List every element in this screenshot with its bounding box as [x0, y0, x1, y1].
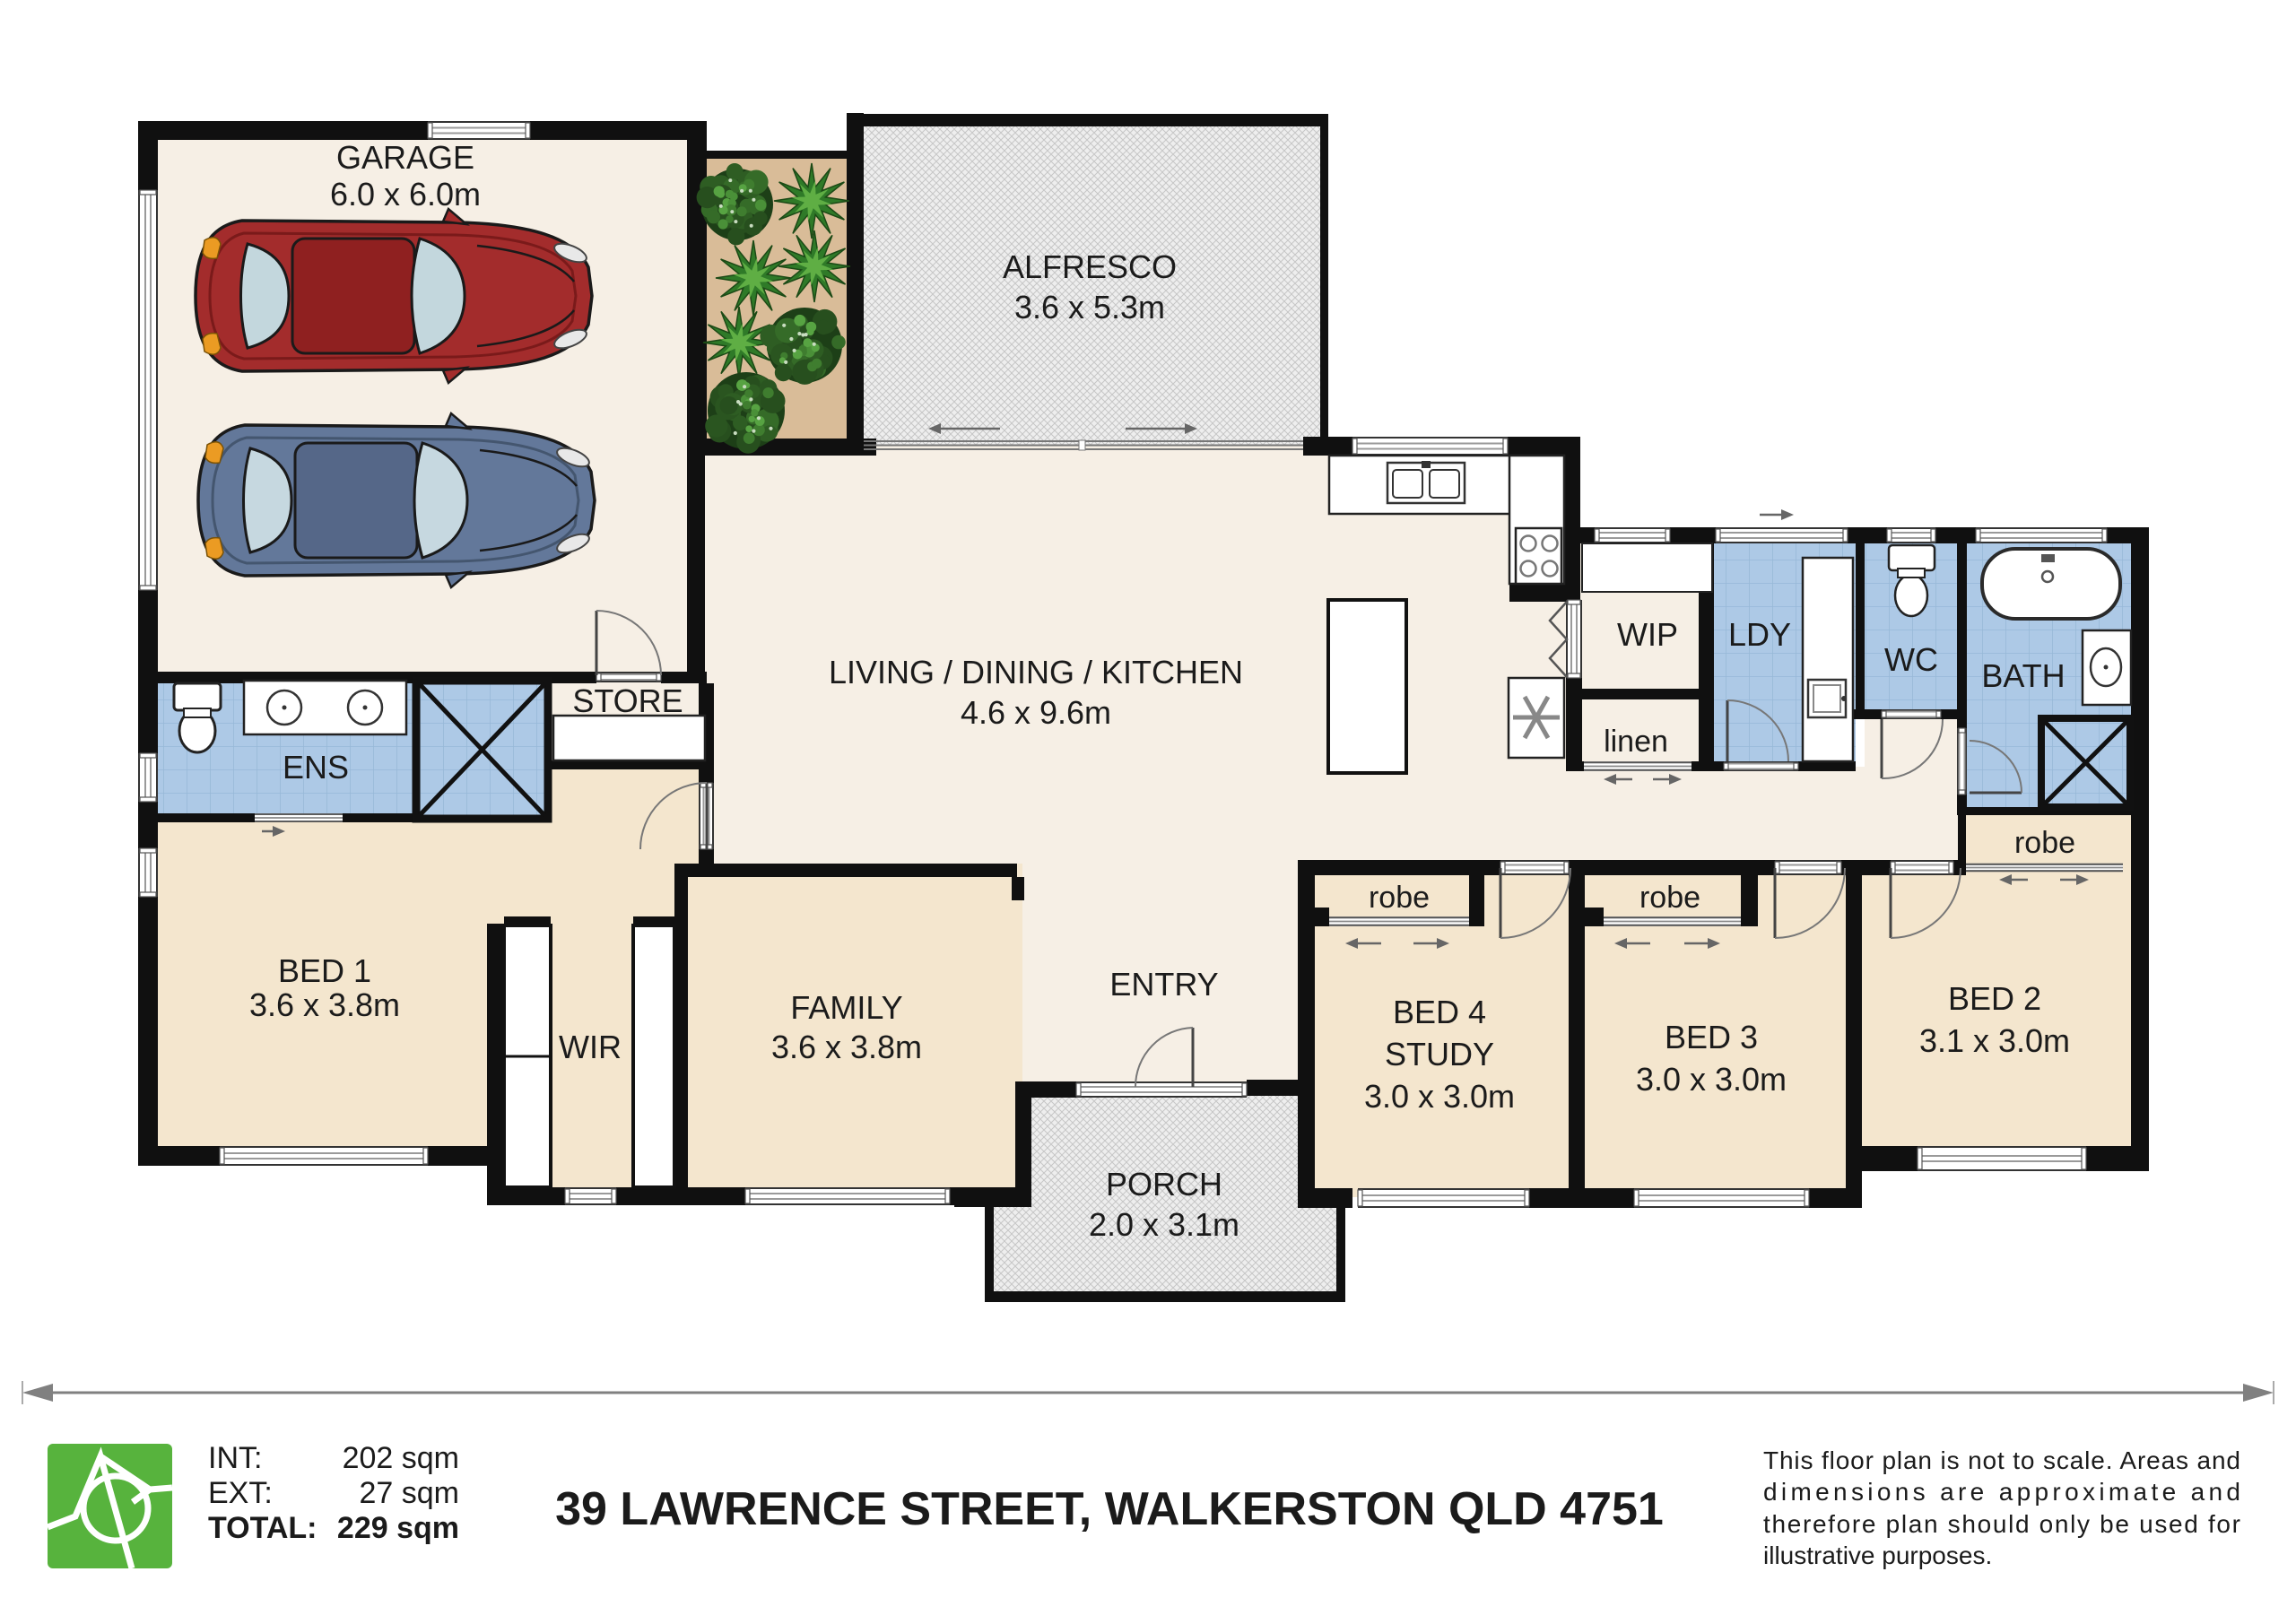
svg-text:linen: linen: [1604, 725, 1668, 759]
svg-text:3.6 x 3.8m: 3.6 x 3.8m: [249, 986, 400, 1023]
svg-text:2.0 x 3.1m: 2.0 x 3.1m: [1089, 1206, 1239, 1243]
svg-text:3.1 x 3.0m: 3.1 x 3.0m: [1919, 1022, 2070, 1059]
svg-text:ALFRESCO: ALFRESCO: [1003, 248, 1177, 285]
svg-text:This floor plan is not to scal: This floor plan is not to scale. Areas a…: [1763, 1446, 2240, 1474]
svg-text:4.6 x 9.6m: 4.6 x 9.6m: [961, 694, 1111, 731]
svg-text:GARAGE: GARAGE: [336, 139, 474, 176]
svg-text:ENTRY: ENTRY: [1109, 966, 1218, 1003]
svg-text:INT:: INT:: [208, 1441, 262, 1475]
svg-text:WC: WC: [1884, 641, 1938, 678]
svg-text:BED 1: BED 1: [278, 952, 371, 989]
svg-text:BED 4: BED 4: [1393, 994, 1486, 1030]
svg-text:3.0 x 3.0m: 3.0 x 3.0m: [1364, 1078, 1515, 1115]
svg-text:PORCH: PORCH: [1106, 1166, 1222, 1203]
svg-text:dimensions are approximate and: dimensions are approximate and: [1763, 1478, 2240, 1506]
svg-text:STUDY: STUDY: [1385, 1036, 1494, 1073]
svg-text:illustrative purposes.: illustrative purposes.: [1763, 1541, 1992, 1569]
svg-text:ENS: ENS: [283, 749, 349, 786]
svg-text:WIR: WIR: [559, 1029, 622, 1065]
svg-text:TOTAL:: TOTAL:: [208, 1511, 317, 1545]
svg-text:WIP: WIP: [1617, 616, 1678, 653]
svg-text:229 sqm: 229 sqm: [337, 1511, 459, 1545]
svg-text:therefore plan should only be: therefore plan should only be used for: [1763, 1510, 2240, 1538]
svg-text:STORE: STORE: [572, 682, 683, 719]
svg-text:LDY: LDY: [1728, 616, 1791, 653]
svg-text:3.0 x 3.0m: 3.0 x 3.0m: [1636, 1061, 1787, 1098]
svg-text:BED 3: BED 3: [1665, 1019, 1758, 1055]
svg-text:3.6 x 3.8m: 3.6 x 3.8m: [771, 1029, 922, 1065]
svg-text:robe: robe: [2014, 826, 2075, 860]
svg-text:BATH: BATH: [1981, 657, 2065, 694]
svg-text:202 sqm: 202 sqm: [343, 1441, 459, 1475]
svg-text:27 sqm: 27 sqm: [360, 1476, 460, 1510]
svg-text:FAMILY: FAMILY: [790, 989, 902, 1026]
svg-text:LIVING / DINING / KITCHEN: LIVING / DINING / KITCHEN: [829, 654, 1243, 690]
svg-text:robe: robe: [1369, 881, 1430, 915]
svg-text:3.6 x 5.3m: 3.6 x 5.3m: [1014, 289, 1165, 326]
svg-text:EXT:: EXT:: [208, 1476, 273, 1510]
svg-text:robe: robe: [1639, 881, 1700, 915]
svg-text:39 LAWRENCE STREET, WALKERSTON: 39 LAWRENCE STREET, WALKERSTON QLD 4751: [555, 1483, 1664, 1535]
svg-text:BED 2: BED 2: [1948, 980, 2041, 1017]
svg-text:6.0 x 6.0m: 6.0 x 6.0m: [330, 176, 481, 213]
